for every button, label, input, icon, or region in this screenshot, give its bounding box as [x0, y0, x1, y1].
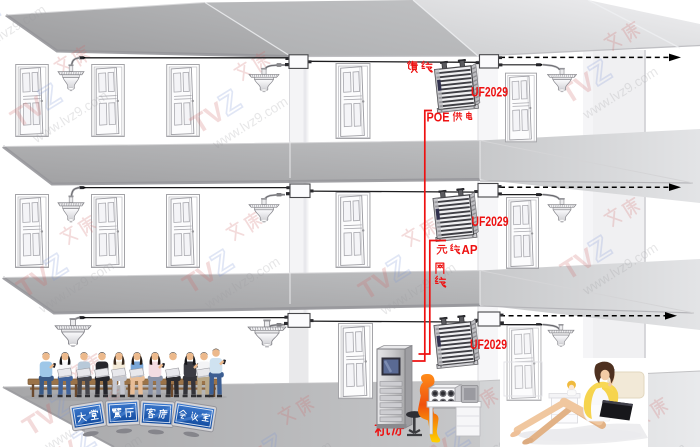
svg-text:UF2029: UF2029: [470, 337, 507, 352]
svg-text:UF2029: UF2029: [472, 214, 509, 229]
svg-text:AP: AP: [462, 242, 478, 257]
svg-text:POE: POE: [427, 110, 450, 125]
svg-text:UF2029: UF2029: [471, 85, 508, 100]
